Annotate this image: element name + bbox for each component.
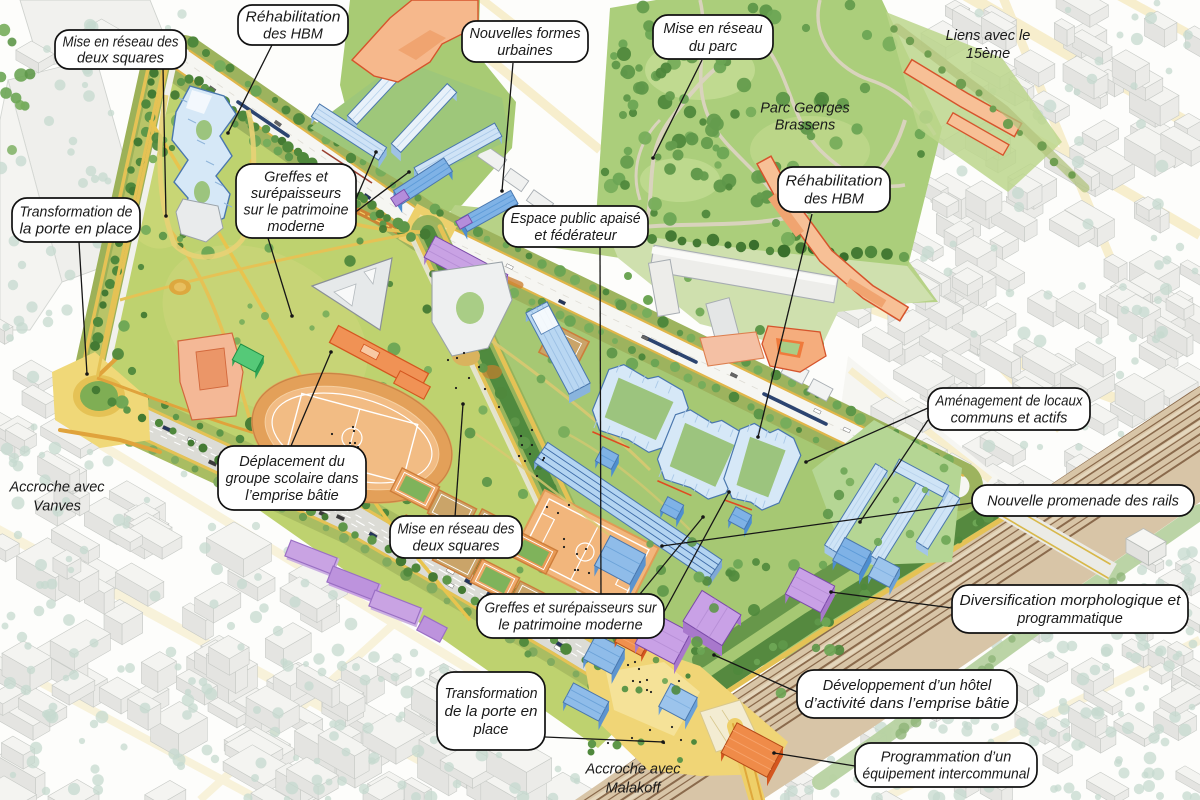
svg-text:et fédérateur: et fédérateur: [534, 228, 617, 244]
svg-text:Accroche avec: Accroche avec: [8, 480, 105, 496]
svg-text:Programmation d’un: Programmation d’un: [881, 750, 1012, 766]
svg-text:Espace public apaisé: Espace public apaisé: [511, 211, 641, 227]
svg-text:sur le patrimoine: sur le patrimoine: [244, 202, 349, 218]
svg-text:des HBM: des HBM: [263, 27, 324, 43]
svg-text:urbaines: urbaines: [497, 43, 553, 59]
svg-text:Nouvelles formes: Nouvelles formes: [470, 26, 581, 42]
svg-text:Vanves: Vanves: [33, 499, 81, 515]
svg-text:deux squares: deux squares: [412, 539, 499, 555]
svg-text:de la porte en: de la porte en: [445, 704, 538, 720]
svg-text:Mise en réseau des: Mise en réseau des: [398, 522, 515, 538]
svg-text:d’activité dans l’emprise bâti: d’activité dans l’emprise bâtie: [805, 696, 1010, 712]
svg-text:Réhabilitation: Réhabilitation: [786, 174, 883, 190]
svg-text:Greffes et surépaisseurs sur: Greffes et surépaisseurs sur: [485, 601, 658, 617]
svg-text:l’emprise bâtie: l’emprise bâtie: [245, 488, 339, 504]
svg-text:moderne: moderne: [267, 219, 324, 235]
svg-text:équipement intercommunal: équipement intercommunal: [863, 767, 1031, 783]
svg-text:la porte en place: la porte en place: [20, 222, 133, 238]
svg-text:Déplacement du: Déplacement du: [239, 454, 345, 470]
svg-text:communs et actifs: communs et actifs: [951, 411, 1068, 427]
svg-text:deux squares: deux squares: [77, 51, 164, 67]
svg-text:surépaisseurs: surépaisseurs: [251, 186, 341, 202]
svg-text:Transformation de: Transformation de: [20, 205, 133, 221]
svg-text:Nouvelle promenade des rails: Nouvelle promenade des rails: [987, 494, 1179, 510]
svg-text:Parc Georges: Parc Georges: [760, 101, 849, 117]
svg-text:Greffes et: Greffes et: [264, 169, 329, 185]
svg-text:Mise en réseau des: Mise en réseau des: [63, 35, 179, 51]
svg-text:Réhabilitation: Réhabilitation: [246, 10, 341, 26]
svg-text:le patrimoine moderne: le patrimoine moderne: [498, 618, 642, 634]
svg-text:Accroche avec: Accroche avec: [584, 762, 681, 778]
svg-text:Malakoff: Malakoff: [606, 781, 663, 797]
svg-text:Développement d’un hôtel: Développement d’un hôtel: [823, 678, 992, 694]
svg-text:Liens avec le: Liens avec le: [946, 28, 1031, 44]
svg-text:place: place: [473, 722, 509, 738]
svg-text:Aménagement de locaux: Aménagement de locaux: [935, 394, 1084, 410]
svg-text:groupe scolaire dans: groupe scolaire dans: [226, 471, 359, 487]
svg-text:des HBM: des HBM: [804, 192, 865, 208]
svg-text:programmatique: programmatique: [1016, 611, 1123, 627]
svg-text:Transformation: Transformation: [445, 686, 538, 702]
svg-text:Brassens: Brassens: [775, 118, 835, 134]
svg-text:15ème: 15ème: [966, 46, 1010, 62]
svg-text:Mise en réseau: Mise en réseau: [663, 21, 762, 37]
svg-text:du parc: du parc: [689, 39, 738, 55]
svg-text:Diversification morphologique: Diversification morphologique et: [960, 593, 1182, 609]
